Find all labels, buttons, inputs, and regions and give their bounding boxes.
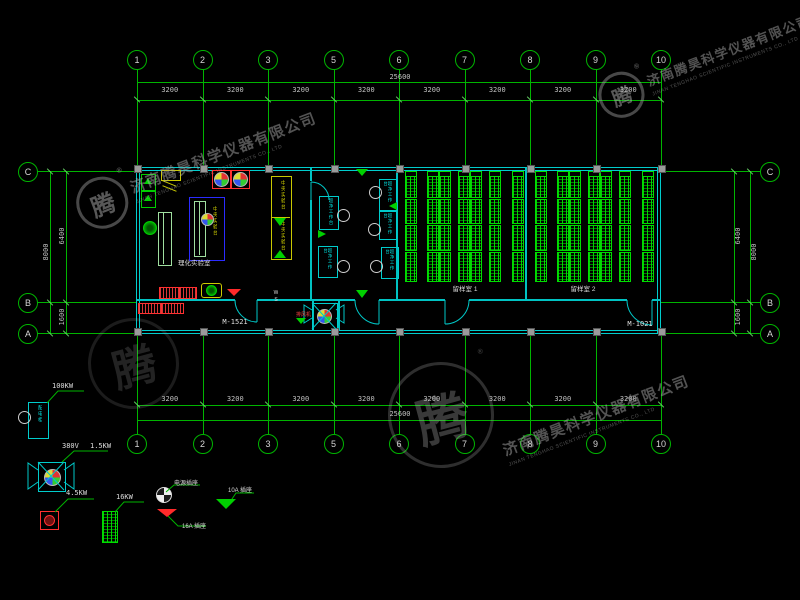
storage-rack bbox=[619, 199, 631, 224]
column-marker bbox=[200, 328, 208, 336]
watermark-logo-char: 腾 bbox=[104, 327, 163, 400]
watermark-logo-char: 腾 bbox=[406, 372, 476, 458]
row-dimension: 8000 bbox=[750, 237, 758, 267]
bay-dimension: 3200 bbox=[616, 86, 640, 94]
storage-rack bbox=[470, 252, 482, 282]
storage-rack bbox=[588, 252, 600, 282]
storage-rack bbox=[458, 176, 470, 198]
grid-axis-line bbox=[137, 69, 138, 167]
storage-rack bbox=[557, 225, 569, 251]
grid-axis-line bbox=[334, 334, 335, 434]
storage-rack bbox=[405, 176, 417, 198]
bay-dimension: 3200 bbox=[420, 86, 444, 94]
legend-leader-lines bbox=[47, 391, 254, 526]
column-marker bbox=[200, 165, 208, 173]
grid-row-bubble-right: C bbox=[760, 162, 780, 182]
row-dimension: 1600 bbox=[734, 302, 742, 332]
stool bbox=[337, 260, 350, 273]
legend-fan-power: 1.5KW bbox=[90, 442, 111, 450]
wall-partition bbox=[310, 168, 312, 181]
grid-axis-line bbox=[661, 334, 662, 434]
storage-rack bbox=[642, 199, 654, 224]
column-marker bbox=[265, 328, 273, 336]
grid-axis-line bbox=[203, 69, 204, 167]
stool bbox=[337, 209, 350, 222]
ws-label: WS bbox=[270, 290, 278, 304]
grid-column-bubble-bottom: 1 bbox=[127, 434, 147, 454]
bay-dimension: 3200 bbox=[616, 395, 640, 403]
bay-dimension: 3200 bbox=[223, 395, 247, 403]
fan-icon bbox=[214, 172, 229, 187]
storage-rack bbox=[600, 225, 612, 251]
grid-row-bubble-left: B bbox=[18, 293, 38, 313]
bench-instrument-fan bbox=[201, 213, 214, 226]
storage-rack bbox=[535, 199, 547, 224]
storage-rack bbox=[569, 199, 581, 224]
storage-rack bbox=[512, 225, 524, 251]
grid-axis-line bbox=[596, 69, 597, 167]
storage-rack bbox=[557, 176, 569, 198]
grid-axis-line bbox=[530, 69, 531, 167]
room-label-sample-1: 留样室 1 bbox=[440, 283, 490, 293]
grid-axis-line bbox=[661, 333, 760, 334]
bench-label: 中央实验台 bbox=[277, 180, 285, 215]
legend-fan-icon bbox=[44, 469, 61, 486]
wall-bench-divider bbox=[271, 217, 290, 218]
bay-dimension: 3200 bbox=[223, 86, 247, 94]
bay-dimension: 3200 bbox=[354, 86, 378, 94]
clean-bench-label: 超净工作台 bbox=[386, 249, 394, 275]
grid-axis-line bbox=[268, 69, 269, 167]
storage-rack bbox=[439, 199, 451, 224]
wall-corridor bbox=[379, 299, 445, 301]
row-dimension: 6400 bbox=[58, 221, 66, 251]
legend-socket16-label: 16A 插座 bbox=[182, 521, 206, 530]
bench-label: 中央实验台 bbox=[277, 221, 285, 256]
dim-line bbox=[137, 82, 661, 83]
grid-axis-line bbox=[661, 69, 662, 167]
legend-cabinet-label: 配电柜 bbox=[34, 405, 42, 435]
watermark-company-en: JINAN TENGHAO SCIENTIFIC INSTRUMENTS CO.… bbox=[651, 29, 800, 97]
storage-rack bbox=[427, 176, 439, 198]
bay-dimension: 3200 bbox=[485, 86, 509, 94]
power-panel bbox=[138, 303, 162, 314]
storage-rack bbox=[600, 252, 612, 282]
grid-column-bubble-top: 3 bbox=[258, 50, 278, 70]
grid-row-bubble-right: B bbox=[760, 293, 780, 313]
storage-rack bbox=[642, 252, 654, 282]
wall-fan-closet bbox=[338, 301, 340, 330]
column-marker bbox=[593, 328, 601, 336]
storage-rack bbox=[405, 199, 417, 224]
storage-rack bbox=[642, 225, 654, 251]
bay-dimension: 3200 bbox=[158, 86, 182, 94]
equipment-arrow-icon bbox=[144, 178, 152, 184]
grid-column-bubble-bottom: 3 bbox=[258, 434, 278, 454]
column-marker bbox=[658, 165, 666, 173]
storage-rack bbox=[458, 199, 470, 224]
storage-rack bbox=[619, 252, 631, 282]
storage-rack bbox=[569, 176, 581, 198]
clean-bench-label: 超净工作台 bbox=[384, 181, 392, 207]
legend-pump-power: 4.5KW bbox=[66, 489, 87, 497]
storage-rack bbox=[588, 199, 600, 224]
legend-pump-circle bbox=[44, 515, 55, 526]
side-bench bbox=[158, 212, 172, 266]
storage-rack bbox=[470, 199, 482, 224]
dim-line bbox=[66, 171, 67, 333]
grid-row-bubble-left: A bbox=[18, 324, 38, 344]
row-dimension: 1600 bbox=[58, 302, 66, 332]
fan-icon bbox=[233, 172, 248, 187]
grid-column-bubble-top: 2 bbox=[193, 50, 213, 70]
legend-rack bbox=[102, 511, 118, 543]
grid-axis-line bbox=[596, 334, 597, 434]
power-panel bbox=[161, 303, 184, 314]
grid-row-bubble-left: C bbox=[18, 162, 38, 182]
lab-bench-top bbox=[194, 201, 206, 257]
row-dimension: 6400 bbox=[734, 221, 742, 251]
dim-line bbox=[50, 171, 51, 333]
column-marker bbox=[134, 165, 142, 173]
legend-socket10-label: 10A 插座 bbox=[228, 485, 252, 494]
storage-rack bbox=[569, 225, 581, 251]
registered-mark: ® bbox=[633, 63, 640, 71]
storage-rack bbox=[427, 252, 439, 282]
grid-axis-line bbox=[465, 69, 466, 167]
watermark-logo-icon: 腾 ® bbox=[592, 65, 651, 124]
watermark-company-cn: 济南腾昊科学仪器有限公司 bbox=[644, 9, 800, 89]
wall-partition bbox=[310, 200, 312, 299]
storage-rack bbox=[642, 176, 654, 198]
watermark-company-en: JINAN TENGHAO SCIENTIFIC INSTRUMENTS CO.… bbox=[508, 391, 695, 468]
stool bbox=[369, 186, 382, 199]
bay-dimension: 3200 bbox=[551, 86, 575, 94]
storage-rack bbox=[535, 225, 547, 251]
column-marker bbox=[527, 165, 535, 173]
legend-main-power: 100KW bbox=[52, 382, 73, 390]
grid-axis-line bbox=[661, 302, 760, 303]
power-panel bbox=[159, 287, 180, 299]
storage-rack bbox=[458, 225, 470, 251]
column-marker bbox=[396, 328, 404, 336]
column-marker bbox=[331, 165, 339, 173]
door-label-left: M-1521 bbox=[210, 318, 260, 326]
washer-motor bbox=[206, 285, 217, 296]
legend-socket-label: 电源插座 bbox=[174, 478, 198, 487]
watermark-logo-icon: 腾 ® bbox=[376, 350, 506, 480]
column-marker bbox=[396, 165, 404, 173]
storage-rack bbox=[557, 199, 569, 224]
storage-rack bbox=[489, 252, 501, 282]
storage-rack bbox=[439, 225, 451, 251]
column-marker bbox=[658, 328, 666, 336]
equipment-arrow-icon bbox=[144, 195, 152, 201]
storage-rack bbox=[557, 252, 569, 282]
room-label-sample-2: 留样室 2 bbox=[558, 283, 608, 293]
storage-rack bbox=[569, 252, 581, 282]
grid-column-bubble-top: 6 bbox=[389, 50, 409, 70]
storage-rack bbox=[489, 199, 501, 224]
storage-rack bbox=[470, 176, 482, 198]
grid-column-bubble-top: 5 bbox=[324, 50, 344, 70]
column-marker bbox=[462, 165, 470, 173]
grid-column-bubble-top: 7 bbox=[455, 50, 475, 70]
lab-bench-divider bbox=[199, 201, 200, 255]
bay-dimension: 3200 bbox=[551, 395, 575, 403]
storage-rack bbox=[439, 252, 451, 282]
legend-rack-power: 16KW bbox=[116, 493, 133, 501]
grid-column-bubble-bottom: 9 bbox=[586, 434, 606, 454]
side-bench-divider bbox=[163, 212, 164, 264]
column-marker bbox=[462, 328, 470, 336]
storage-rack bbox=[535, 176, 547, 198]
grid-row-bubble-right: A bbox=[760, 324, 780, 344]
grid-column-bubble-top: 10 bbox=[651, 50, 671, 70]
storage-rack bbox=[405, 252, 417, 282]
grid-axis-line bbox=[334, 69, 335, 167]
storage-rack bbox=[600, 176, 612, 198]
grid-column-bubble-bottom: 5 bbox=[324, 434, 344, 454]
watermark-logo-icon: 腾 ® bbox=[69, 169, 136, 236]
clean-bench-label: 超净工作台 bbox=[324, 248, 332, 274]
equipment-circle bbox=[143, 221, 157, 235]
wall-corridor bbox=[469, 299, 627, 301]
watermark-logo-char: 腾 bbox=[85, 182, 120, 223]
legend-fan-voltage: 380V bbox=[62, 442, 79, 450]
door-label-right: M-1021 bbox=[615, 320, 665, 328]
grid-axis-line bbox=[530, 334, 531, 434]
wall-corridor bbox=[652, 299, 661, 301]
power-panel bbox=[179, 287, 197, 299]
grid-axis-line bbox=[399, 69, 400, 167]
storage-rack bbox=[489, 176, 501, 198]
fume-tag bbox=[161, 170, 181, 181]
storage-rack bbox=[535, 252, 547, 282]
grid-column-bubble-top: 9 bbox=[586, 50, 606, 70]
stool bbox=[368, 223, 381, 236]
bay-dimension: 3200 bbox=[289, 395, 313, 403]
exhaust-fan-icon bbox=[317, 309, 332, 324]
grid-axis-line bbox=[268, 334, 269, 434]
storage-rack bbox=[512, 199, 524, 224]
watermark: 腾 ® 济南腾昊科学仪器有限公司 JINAN TENGHAO SCIENTIFI… bbox=[592, 1, 800, 125]
total-dimension: 25600 bbox=[387, 73, 413, 81]
exhaust-fan-label: 排风机 bbox=[296, 311, 311, 318]
storage-rack bbox=[588, 225, 600, 251]
column-marker bbox=[593, 165, 601, 173]
wall-right bbox=[657, 167, 661, 334]
bay-dimension: 3200 bbox=[289, 86, 313, 94]
storage-rack bbox=[619, 176, 631, 198]
grid-column-bubble-top: 8 bbox=[520, 50, 540, 70]
grid-axis-line bbox=[661, 171, 760, 172]
legend-cabinet-knob bbox=[18, 411, 31, 424]
clean-bench-label: 超净工作台 bbox=[325, 198, 333, 226]
cad-floorplan-canvas: 中央实验台 中央实验台 中央实验台 理化实验室 超净工作台 超净工作台 超净工作… bbox=[0, 0, 800, 600]
room-label-lab: 理化实验室 bbox=[178, 257, 211, 267]
storage-rack bbox=[427, 199, 439, 224]
storage-rack bbox=[439, 176, 451, 198]
storage-rack bbox=[427, 225, 439, 251]
legend-socket-icon bbox=[156, 487, 172, 503]
bay-dimension: 3200 bbox=[354, 395, 378, 403]
grid-column-bubble-bottom: 10 bbox=[651, 434, 671, 454]
grid-column-bubble-bottom: 8 bbox=[520, 434, 540, 454]
storage-rack bbox=[512, 176, 524, 198]
storage-rack bbox=[458, 252, 470, 282]
stool bbox=[370, 260, 383, 273]
registered-mark: ® bbox=[477, 348, 484, 356]
column-marker bbox=[331, 328, 339, 336]
grid-column-bubble-bottom: 2 bbox=[193, 434, 213, 454]
grid-axis-line bbox=[203, 334, 204, 434]
storage-rack bbox=[405, 225, 417, 251]
socket-triangles-green bbox=[216, 169, 397, 509]
storage-rack bbox=[512, 252, 524, 282]
storage-rack bbox=[619, 225, 631, 251]
column-marker bbox=[527, 328, 535, 336]
wall-partition bbox=[525, 168, 527, 299]
storage-rack bbox=[588, 176, 600, 198]
storage-rack bbox=[489, 225, 501, 251]
storage-rack bbox=[600, 199, 612, 224]
wall-corridor bbox=[137, 299, 235, 301]
clean-bench-label: 超净工作台 bbox=[384, 213, 392, 236]
grid-column-bubble-top: 1 bbox=[127, 50, 147, 70]
row-dimension: 8000 bbox=[42, 237, 50, 267]
storage-rack bbox=[470, 225, 482, 251]
column-marker bbox=[265, 165, 273, 173]
